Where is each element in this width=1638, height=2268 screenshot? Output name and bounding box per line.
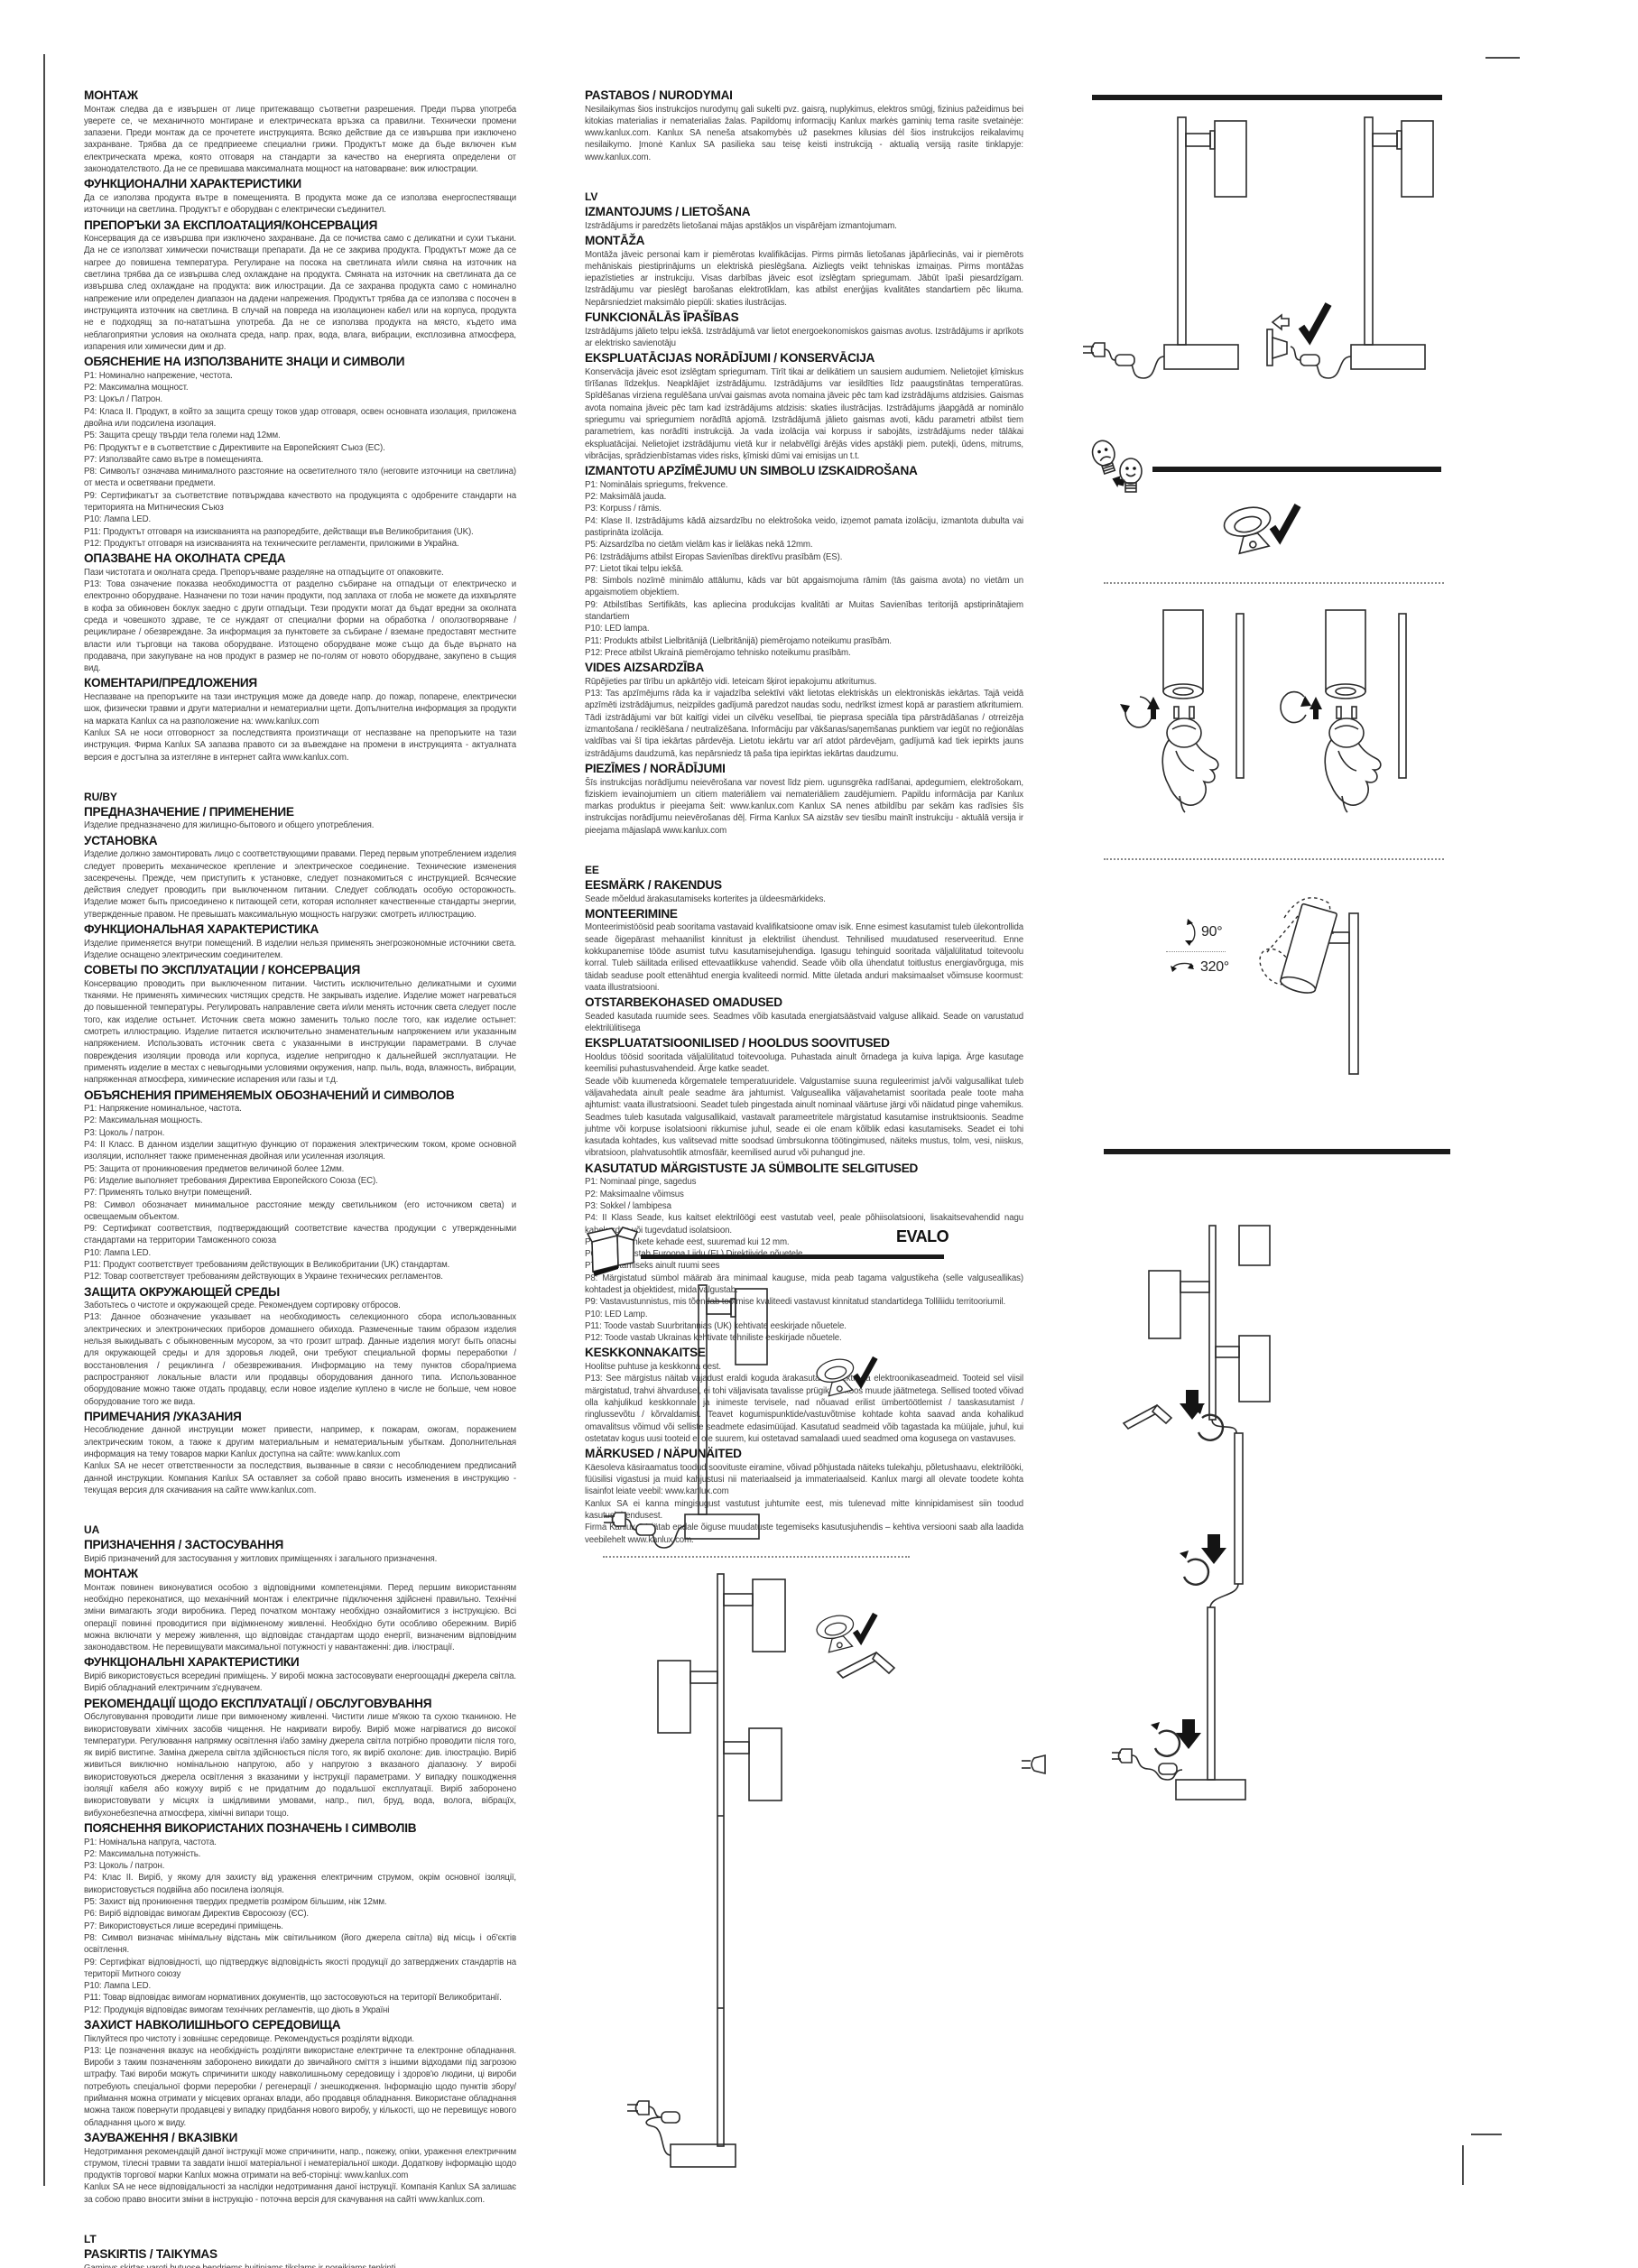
- gu10-insert-illustration: [1279, 605, 1414, 812]
- body-paragraph: P3: Sokkel / lambipesa: [585, 1200, 1023, 1212]
- body-paragraph: Виріб використовується всередині приміще…: [84, 1671, 516, 1695]
- section-heading: ЗАХИСТ НАВКОЛИШНЬОГО СЕРЕДОВИЩА: [84, 2018, 516, 2033]
- tilt-range-icon: [1183, 918, 1201, 947]
- body-paragraph: Gaminys skirtas varoti butuose bendriems…: [84, 2263, 516, 2268]
- body-paragraph: P4: Клас II. Виріб, у якому для захисту …: [84, 1872, 516, 1896]
- body-paragraph: P6: Изделие выполняет требования Директи…: [84, 1175, 516, 1187]
- body-paragraph: Консервация да се извършва при изключено…: [84, 233, 516, 353]
- push-up-arrow-icon: [1147, 697, 1160, 719]
- body-paragraph: P6: Виріб відповідає вимогам Директив Єв…: [84, 1908, 516, 1920]
- language-label: EE: [585, 864, 1023, 876]
- section-heading: IZMANTOJUMS / LIETOŠANA: [585, 205, 1023, 220]
- evalo-floor-lamp-illustration: [609, 1570, 799, 2175]
- body-paragraph: P7: Використовується лише всередині прим…: [84, 1921, 516, 1932]
- section-heading: ПОЯСНЕННЯ ВИКОРИСТАНИХ ПОЗНАЧЕНЬ І СИМВО…: [84, 1821, 516, 1837]
- rotate-ccw-icon: [1155, 1731, 1180, 1756]
- body-paragraph: P13: Це позначення вказує на необхідніст…: [84, 2045, 516, 2129]
- body-paragraph: P10: Лампа LED.: [84, 1980, 516, 1992]
- body-paragraph: P3: Цоколь / патрон.: [84, 1860, 516, 1872]
- manual-page: МОНТАЖМонтаж следва да е извършен от лиц…: [0, 0, 1638, 2268]
- insert-direction-arrow-icon: [1272, 315, 1289, 329]
- body-paragraph: Konservācija jāveic esot izslēgtam sprie…: [585, 366, 1023, 462]
- body-paragraph: P9: Сертификат соответствия, подтверждаю…: [84, 1223, 516, 1247]
- push-down-arrow-icon: [1180, 1390, 1205, 1420]
- body-paragraph: P6: Izstrādājums atbilst Eiropas Savienī…: [585, 551, 1023, 563]
- section-heading: MONTEERIMINE: [585, 907, 1023, 922]
- body-paragraph: Šīs instrukcijas norādījumu neievērošana…: [585, 777, 1023, 837]
- body-paragraph: P2: Максимална мощност.: [84, 382, 516, 393]
- section-heading: EKSPLUATATSIOONILISED / HOOLDUS SOOVITUS…: [585, 1036, 1023, 1051]
- body-paragraph: P12: Товар соответствует требованиям дей…: [84, 1271, 516, 1282]
- section-heading: PIEZĪMES / NORĀDĪJUMI: [585, 762, 1023, 777]
- holder-ok-icon-2: [810, 1352, 883, 1408]
- bulb-cooling-icon: [1087, 435, 1148, 504]
- body-paragraph: P12: Prece atbilst Ukrainā piemērojamo t…: [585, 647, 1023, 659]
- swivel-head-illustration: [1244, 880, 1379, 1083]
- body-paragraph: Заботьтесь о чистоте и окружающей среде.…: [84, 1300, 516, 1311]
- body-paragraph: Seade mõeldud ärakasutamiseks korterites…: [585, 893, 1023, 905]
- section-heading: ПРИМЕЧАНИЯ /УКАЗАНИЯ: [84, 1410, 516, 1425]
- body-paragraph: P2: Максимальна потужність.: [84, 1848, 516, 1860]
- body-paragraph: P4: II Klass Seade, kus kaitset elektril…: [585, 1212, 1023, 1236]
- trim-mark-top-right: [1485, 57, 1520, 59]
- body-paragraph: P3: Korpuss / rāmis.: [585, 503, 1023, 514]
- body-paragraph: P6: Продуктът е в съответствие с Директи…: [84, 442, 516, 454]
- section-rule-bulbs: [1152, 467, 1441, 472]
- section-heading: MONTĀŽA: [585, 234, 1023, 249]
- section-heading: ОПАЗВАНЕ НА ОКОЛНАТА СРЕДА: [84, 551, 516, 567]
- body-paragraph: P13: Това означение показва необходимост…: [84, 579, 516, 674]
- language-label: LV: [585, 190, 1023, 203]
- body-paragraph: P2: Maksimālā jauda.: [585, 491, 1023, 503]
- section-rule-bottom: [1104, 1149, 1450, 1154]
- body-paragraph: Montāža jāveic personai kam ir piemērota…: [585, 249, 1023, 309]
- body-paragraph: Izstrādājums jālieto telpu iekšā. Izstrā…: [585, 326, 1023, 350]
- body-paragraph: Да се използва продукта вътре в помещени…: [84, 192, 516, 217]
- body-paragraph: Seaded kasutada ruumide sees. Seadmes võ…: [585, 1011, 1023, 1035]
- body-paragraph: P1: Nominaal pinge, sagedus: [585, 1176, 1023, 1188]
- body-paragraph: Kanlux SA не носи отговорност за последс…: [84, 727, 516, 764]
- checkmark-icon: [1301, 304, 1328, 338]
- allen-key-icon: [835, 1650, 902, 1686]
- body-paragraph: Недотримання рекомендацій даної інструкц…: [84, 2146, 516, 2182]
- section-heading: МОНТАЖ: [84, 88, 516, 104]
- body-paragraph: Піклуйтеся про чистоту і зовнішнє середо…: [84, 2033, 516, 2045]
- body-paragraph: P9: Сертификатът за съответствие потвърж…: [84, 490, 516, 514]
- trim-mark-bottom-right-v: [1462, 2145, 1464, 2185]
- push-down-arrow-icon: [1201, 1534, 1226, 1564]
- body-paragraph: P1: Номинално напрежение, честота.: [84, 370, 516, 382]
- section-rule-top: [1092, 95, 1442, 100]
- body-paragraph: P5: Защита срещу твърди тела големи над …: [84, 430, 516, 441]
- body-paragraph: Несоблюдение данной инструкции может при…: [84, 1424, 516, 1460]
- body-paragraph: P11: Produkts atbilst Lielbritānijā (Lie…: [585, 635, 1023, 647]
- body-paragraph: P13: Данное обозначение указывает на нео…: [84, 1311, 516, 1407]
- section-heading: ПРЕПОРЪКИ ЗА ЕКСПЛОАТАЦИЯ/КОНСЕРВАЦИЯ: [84, 218, 516, 234]
- section-heading: РЕКОМЕНДАЦІЇ ЩОДО ЕКСПЛУАТАЦІЇ / ОБСЛУГО…: [84, 1697, 516, 1712]
- section-heading: УСТАНОВКА: [84, 834, 516, 849]
- pole-assembly-illustration: [1110, 1223, 1272, 1805]
- body-paragraph: P13: Tas apzīmējums rāda ka ir vajadzība…: [585, 688, 1023, 760]
- push-up-arrow-icon: [1309, 697, 1322, 719]
- body-paragraph: Rūpējieties par tīrību un apkārtējo vidi…: [585, 676, 1023, 688]
- body-paragraph: P4: Класа II. Продукт, в който за защита…: [84, 406, 516, 430]
- section-heading: FUNKCIONĀLĀS ĪPAŠĪBAS: [585, 310, 1023, 326]
- evalo-table-lamp-illustration: [594, 1274, 774, 1545]
- section-heading: КОМЕНТАРИ/ПРЕДЛОЖЕНИЯ: [84, 676, 516, 691]
- body-paragraph: P7: Lietot tikai telpu iekšā.: [585, 563, 1023, 575]
- section-heading: OTSTARBEKOHASED OMADUSED: [585, 995, 1023, 1011]
- body-paragraph: P1: Nominālais spriegums, frekvence.: [585, 479, 1023, 491]
- table-lamp-unplugged-illustration: [1077, 106, 1257, 377]
- body-paragraph: P8: Символ обозначает минимальное рассто…: [84, 1199, 516, 1224]
- divider-dotted-2: [1104, 858, 1444, 860]
- rotate-ccw-icon: [1198, 1415, 1223, 1440]
- body-paragraph: Seade võib kuumeneda kõrgematele tempera…: [585, 1076, 1023, 1160]
- body-paragraph: Izstrādājums ir paredzēts lietošanai māj…: [585, 220, 1023, 232]
- body-paragraph: P11: Товар відповідає вимогам нормативни…: [84, 1992, 516, 2004]
- section-heading: МОНТАЖ: [84, 1567, 516, 1582]
- body-paragraph: Hooldus töösid sooritada väljalülitatud …: [585, 1051, 1023, 1076]
- small-plug-icon: [1018, 1753, 1049, 1776]
- rotate-ccw-icon: [1125, 697, 1152, 727]
- body-paragraph: Kanlux SA не несе відповідальності за на…: [84, 2181, 516, 2206]
- angle-divider: [1166, 951, 1226, 952]
- section-heading: ФУНКЦІОНАЛЬНІ ХАРАКТЕРИСТИКИ: [84, 1655, 516, 1671]
- body-paragraph: Nesilaikymas šios instrukcijos nurodymų …: [585, 104, 1023, 163]
- body-paragraph: P5: Kaitse tahkete kehade eest, suuremad…: [585, 1236, 1023, 1248]
- body-paragraph: P2: Maksimaalne võimsus: [585, 1189, 1023, 1200]
- body-paragraph: P9: Atbilstības Sertifikāts, kas aplieci…: [585, 599, 1023, 624]
- body-paragraph: Неспазване на препоръките на тази инстру…: [84, 691, 516, 727]
- body-paragraph: P3: Цоколь / патрон.: [84, 1127, 516, 1139]
- language-label: LT: [84, 2233, 516, 2245]
- body-paragraph: P9: Сертифікат відповідності, що підтвер…: [84, 1957, 516, 1981]
- body-paragraph: P4: II Класс. В данном изделии защитную …: [84, 1139, 516, 1163]
- body-paragraph: Консервацию проводить при выключенном пи…: [84, 978, 516, 1087]
- body-paragraph: P3: Цокъл / Патрон.: [84, 393, 516, 405]
- body-paragraph: P4: Klase II. Izstrādājums kādā aizsardz…: [585, 515, 1023, 540]
- body-paragraph: P8: Символът означава минималното разсто…: [84, 466, 516, 490]
- product-name: EVALO: [896, 1227, 949, 1246]
- swap-arrow-icon: [1111, 474, 1126, 488]
- gu10-remove-illustration: [1116, 605, 1252, 812]
- swivel-angle-label: 320°: [1200, 959, 1229, 976]
- section-heading: ФУНКЦИОНАЛЬНАЯ ХАРАКТЕРИСТИКА: [84, 922, 516, 938]
- left-border-rule: [43, 54, 45, 2186]
- body-paragraph: P7: Kasutamiseks ainult ruumi sees: [585, 1260, 1023, 1272]
- evalo-title-rule: [641, 1254, 944, 1259]
- divider-dotted-1: [1104, 582, 1444, 584]
- body-paragraph: Изделие применяется внутри помещений. В …: [84, 938, 516, 962]
- section-heading: EKSPLUATĀCIJAS NORĀDĪJUMI / KONSERVĀCIJA: [585, 351, 1023, 366]
- body-paragraph: Монтаж повинен виконуватися особою з від…: [84, 1582, 516, 1654]
- section-heading: ПРЕДНАЗНАЧЕНИЕ / ПРИМЕНЕНИЕ: [84, 805, 516, 820]
- section-heading: EESMÄRK / RAKENDUS: [585, 878, 1023, 893]
- body-paragraph: P8: Simbols nozīmē minimālo attālumu, kā…: [585, 575, 1023, 599]
- section-heading: PASKIRTIS / TAIKYMAS: [84, 2247, 516, 2263]
- holder-ok-icon: [1217, 498, 1307, 569]
- body-paragraph: P11: Продуктът отговаря на изискванията …: [84, 526, 516, 538]
- section-heading: KASUTATUD MÄRGISTUSTE JA SÜMBOLITE SELGI…: [585, 1162, 1023, 1177]
- text-column-1: МОНТАЖМонтаж следва да е извършен от лиц…: [84, 87, 516, 2268]
- body-paragraph: P5: Защита от проникновения предметов ве…: [84, 1163, 516, 1175]
- rotate-ccw-icon: [1184, 1560, 1208, 1585]
- body-paragraph: Пази чистотата и околната среда. Препоръ…: [84, 567, 516, 579]
- body-paragraph: P8: Символ визначає мінімальну відстань …: [84, 1932, 516, 1957]
- body-paragraph: P5: Aizsardzība no cietām vielām kas ir …: [585, 539, 1023, 551]
- body-paragraph: P10: Лампа LED.: [84, 514, 516, 525]
- trim-mark-bottom-right-h: [1471, 2134, 1502, 2135]
- body-paragraph: Kanlux SA не несет ответственности за по…: [84, 1460, 516, 1496]
- body-paragraph: P2: Максимальная мощность.: [84, 1115, 516, 1126]
- checkmark-icon: [856, 1357, 875, 1384]
- body-paragraph: Изделие должно замонтировать лицо с соот…: [84, 848, 516, 921]
- checkmark-icon: [856, 1614, 875, 1640]
- body-paragraph: Обслуговування проводити лише при вимкне…: [84, 1711, 516, 1819]
- section-heading: СОВЕТЫ ПО ЭКСПЛУАТАЦИИ / КОНСЕРВАЦИЯ: [84, 963, 516, 978]
- body-paragraph: P10: LED lampa.: [585, 623, 1023, 634]
- section-heading: ЗАЩИТА ОКРУЖАЮЩЕЙ СРЕДЫ: [84, 1285, 516, 1301]
- body-paragraph: P11: Продукт соответствует требованиям д…: [84, 1259, 516, 1271]
- body-paragraph: Монтаж следва да е извършен от лице прит…: [84, 104, 516, 176]
- section-heading: PASTABOS / NURODYMAI: [585, 88, 1023, 104]
- body-paragraph: P1: Номінальна напруга, частота.: [84, 1837, 516, 1848]
- language-label: UA: [84, 1523, 516, 1536]
- checkmark-icon: [1272, 505, 1298, 538]
- section-heading: ПРИЗНАЧЕННЯ / ЗАСТОСУВАННЯ: [84, 1538, 516, 1553]
- tilt-angle-label: 90°: [1201, 924, 1222, 940]
- section-heading: ОБЯСНЕНИЕ НА ИЗПОЛЗВАНИТЕ ЗНАЦИ И СИМВОЛ…: [84, 355, 516, 370]
- divider-dotted-3: [603, 1556, 910, 1558]
- body-paragraph: P5: Захист від проникнення твердих предм…: [84, 1896, 516, 1908]
- body-paragraph: P12: Продуктът отговаря на изискванията …: [84, 538, 516, 550]
- body-paragraph: P10: Лампа LED.: [84, 1247, 516, 1259]
- section-heading: IZMANTOTU APZĪMĒJUMU UN SIMBOLU IZSKAIDR…: [585, 464, 1023, 479]
- section-heading: VIDES AIZSARDZĪBA: [585, 661, 1023, 676]
- section-heading: ОБЪЯСНЕНИЯ ПРИМЕНЯЕМЫХ ОБОЗНАЧЕНИЙ И СИМ…: [84, 1088, 516, 1104]
- package-box-icon: [585, 1220, 641, 1278]
- body-paragraph: P7: Применять только внутри помещений.: [84, 1187, 516, 1199]
- body-paragraph: Изделие предназначено для жилищно-бытово…: [84, 819, 516, 831]
- body-paragraph: P12: Продукція відповідає вимогам техніч…: [84, 2004, 516, 2016]
- rotate-cw-icon: [1281, 692, 1306, 723]
- body-paragraph: P7: Използвайте само вътре в помещенията…: [84, 454, 516, 466]
- allen-key-icon: [1124, 1405, 1171, 1429]
- body-paragraph: P1: Напряжение номинальное, частота.: [84, 1103, 516, 1115]
- section-heading: ЗАУВАЖЕННЯ / ВКАЗІВКИ: [84, 2131, 516, 2146]
- table-lamp-plugged-illustration: [1256, 106, 1446, 377]
- swivel-range-icon: [1170, 958, 1195, 974]
- section-heading: ФУНКЦИОНАЛНИ ХАРАКТЕРИСТИКИ: [84, 177, 516, 192]
- body-paragraph: Виріб призначений для застосування у жит…: [84, 1553, 516, 1565]
- language-label: RU/BY: [84, 791, 516, 803]
- body-paragraph: Monteerimistöösid peab sooritama vastava…: [585, 921, 1023, 994]
